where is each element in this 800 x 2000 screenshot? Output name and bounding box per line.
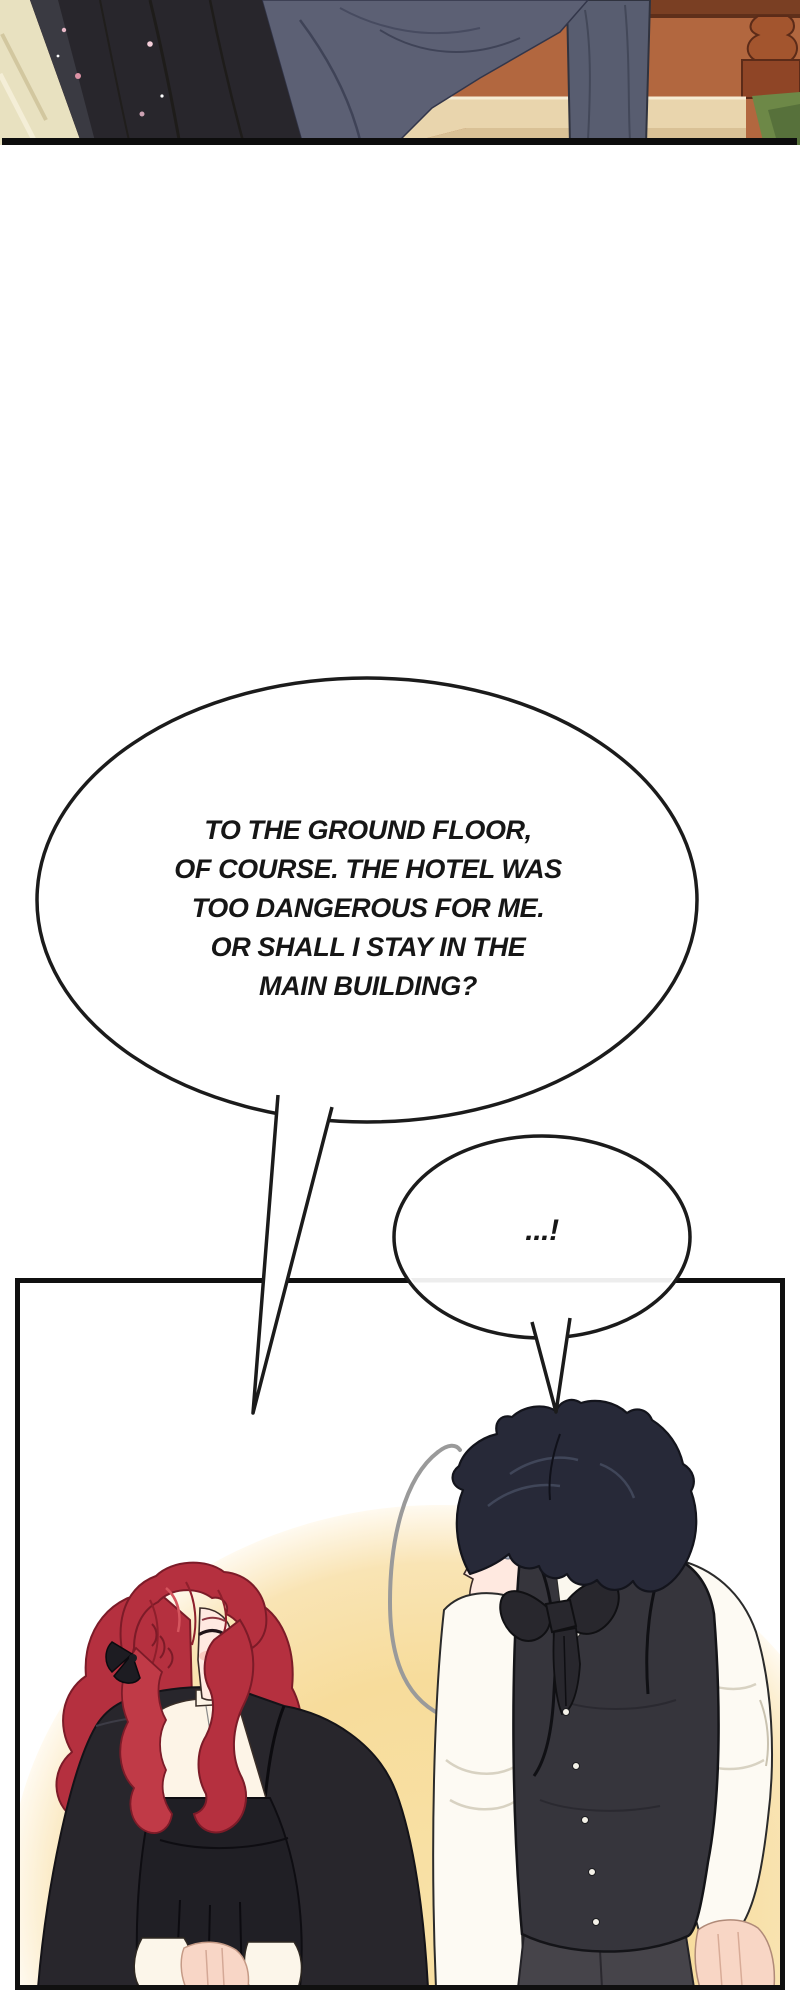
panel-bottom-bar — [2, 138, 797, 145]
webtoon-page: TO THE GROUND FLOOR, OF COURSE. THE HOTE… — [0, 0, 800, 2000]
dialogue-line: TO THE GROUND FLOOR, — [85, 811, 651, 850]
exclamation-text: ...! — [442, 1212, 642, 1250]
panel-couple — [8, 1278, 800, 2000]
dialogue-line: MAIN BUILDING? — [85, 967, 651, 1006]
baluster-post — [748, 16, 797, 62]
man-sleeve-left — [433, 1593, 524, 1988]
handrail — [649, 0, 800, 16]
dialogue-line: TOO DANGEROUS FOR ME. — [85, 889, 651, 928]
dialogue-large: TO THE GROUND FLOOR, OF COURSE. THE HOTE… — [85, 811, 651, 1006]
dialogue-line: OF COURSE. THE HOTEL WAS — [85, 850, 651, 889]
back-leg — [567, 0, 650, 145]
baluster-plinth — [742, 60, 800, 98]
dialogue-small: ...! — [442, 1212, 642, 1250]
woman-cuff-right — [244, 1942, 301, 1988]
panel-top-staircase — [0, 0, 800, 145]
dialogue-line: OR SHALL I STAY IN THE — [85, 928, 651, 967]
